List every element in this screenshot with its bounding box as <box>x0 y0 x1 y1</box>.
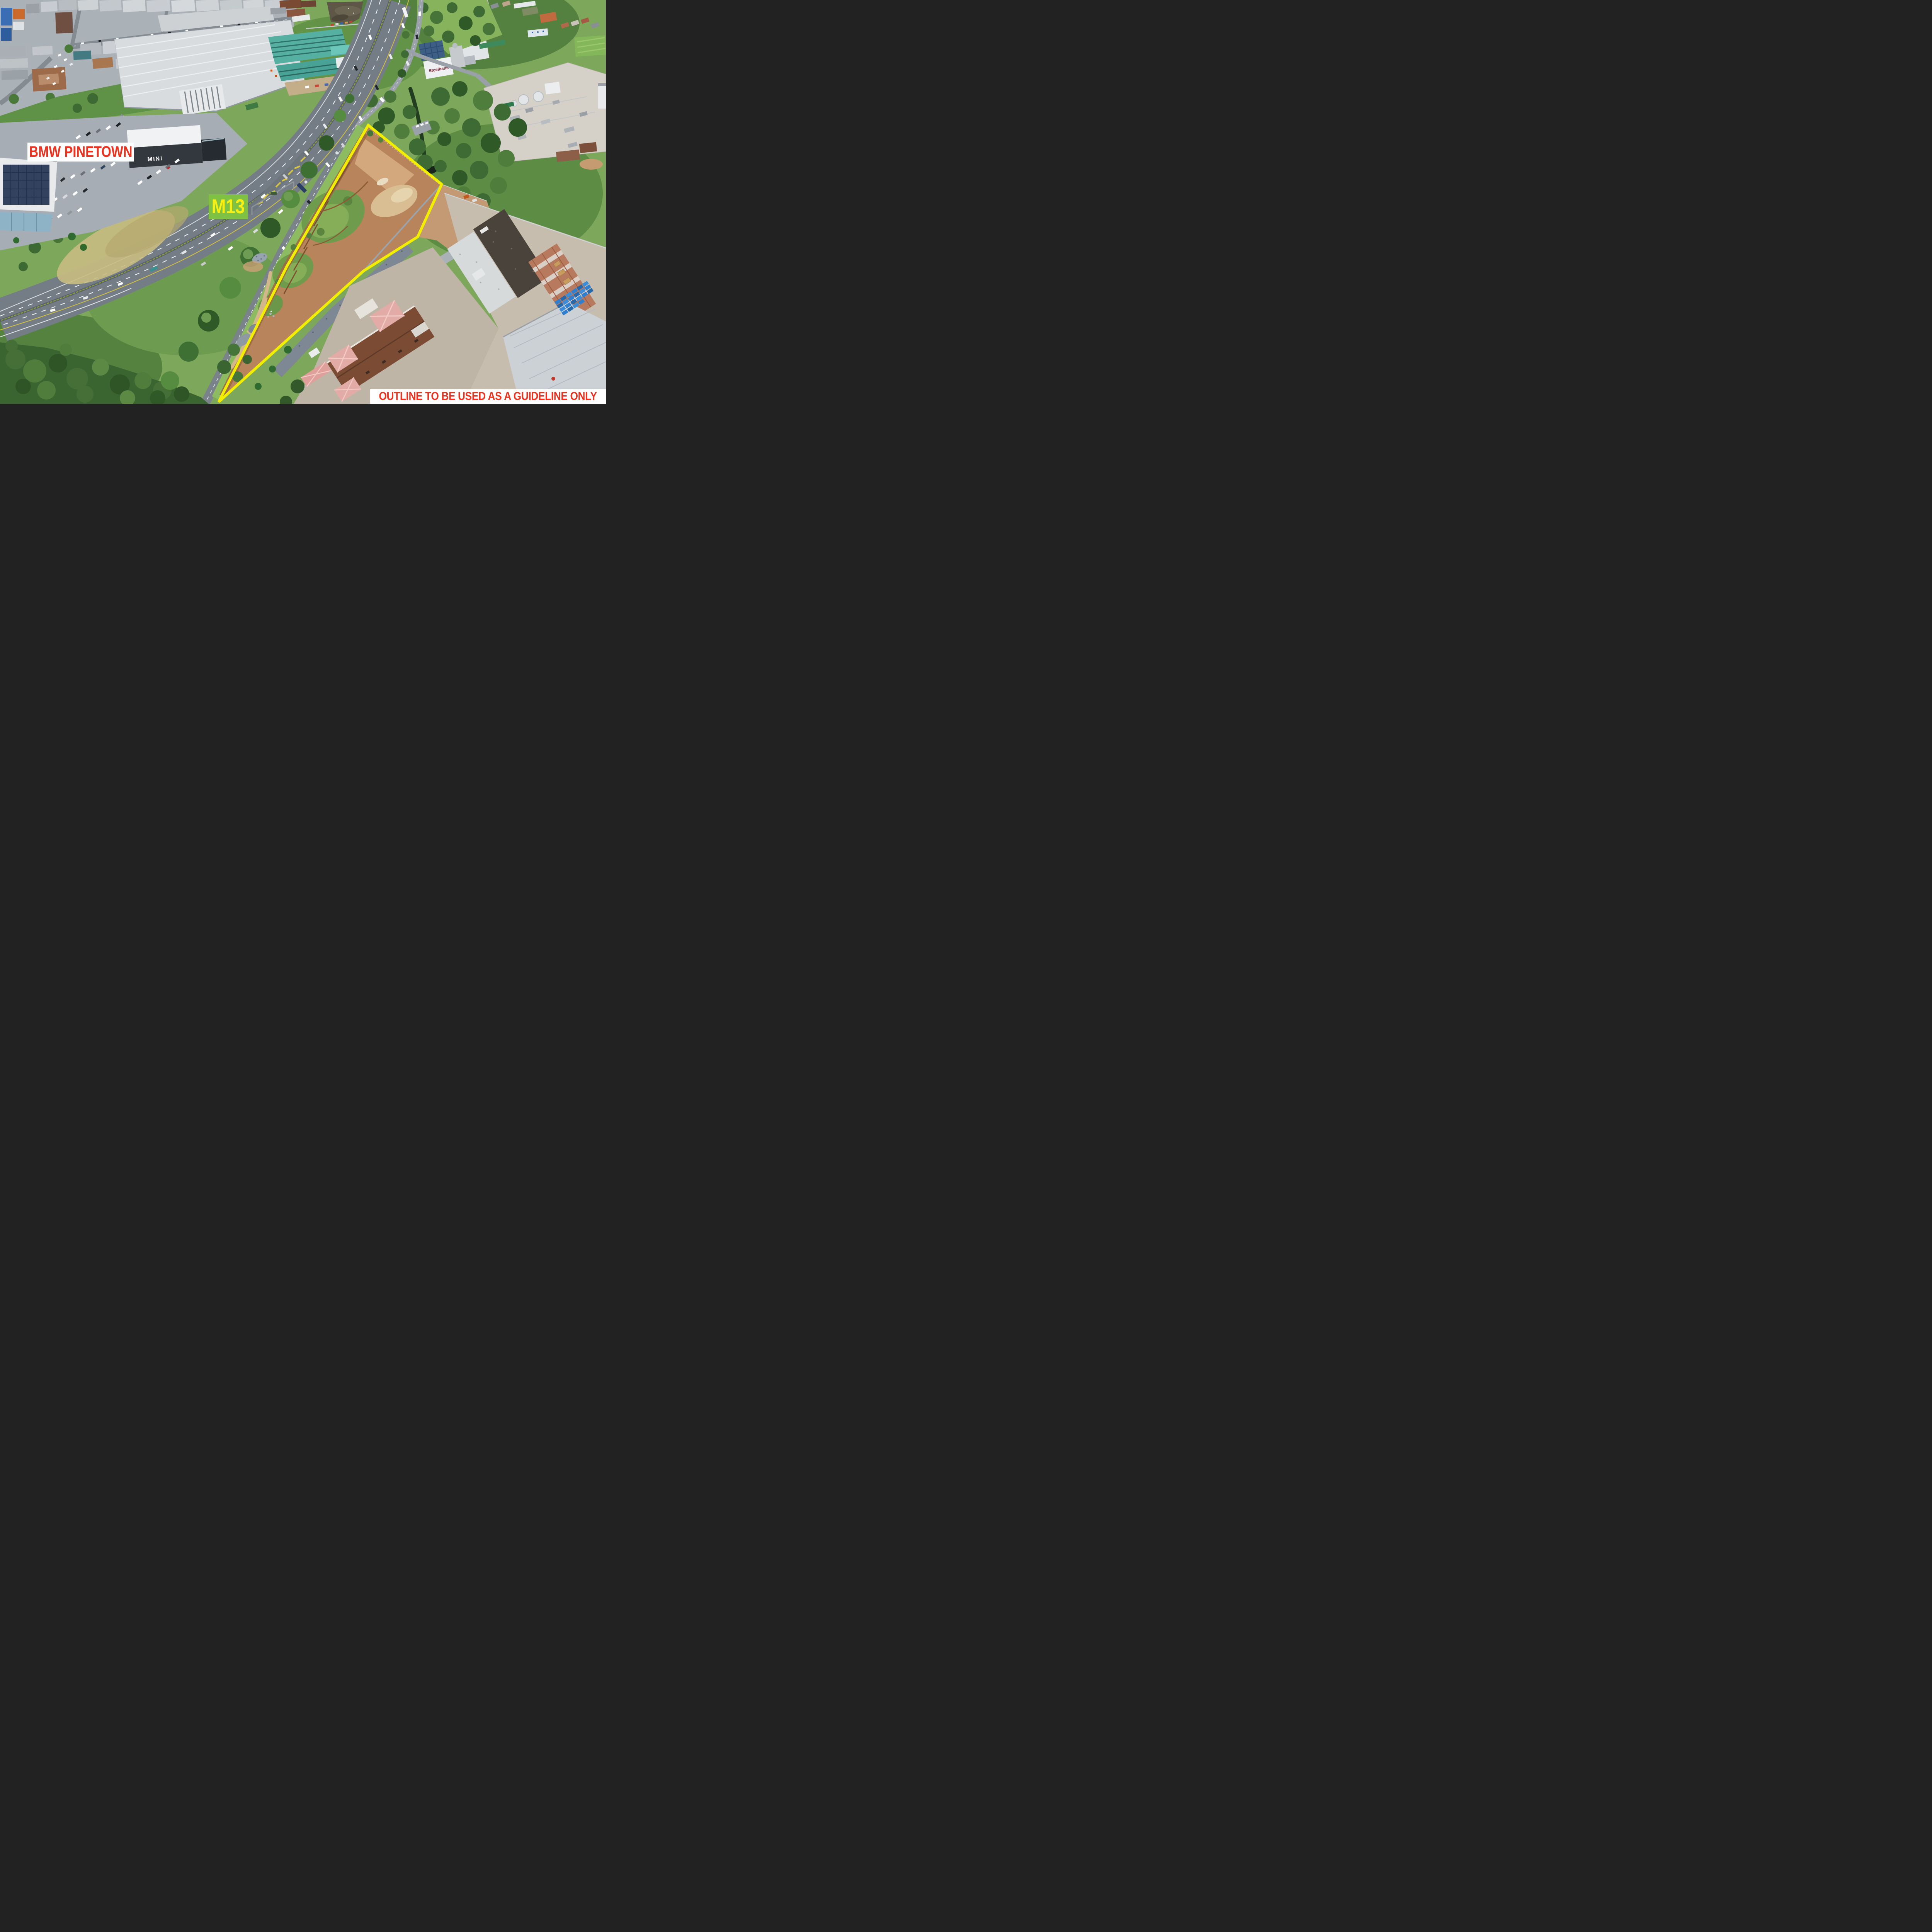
aerial-scene: Steelbank <box>0 0 606 404</box>
m13-road-label: M13 <box>209 194 248 219</box>
guideline-disclaimer-label: OUTLINE TO BE USED AS A GUIDELINE ONLY <box>370 389 606 404</box>
mini-sign-text: MINI <box>147 155 163 163</box>
aerial-photo: Steelbank <box>0 0 606 404</box>
bmw-pinetown-text: BMW PINETOWN <box>29 143 132 161</box>
solar-roof-building <box>0 158 57 232</box>
m13-text: M13 <box>212 195 245 218</box>
bmw-pinetown-label: BMW PINETOWN <box>27 143 134 162</box>
disclaimer-text: OUTLINE TO BE USED AS A GUIDELINE ONLY <box>379 390 597 403</box>
